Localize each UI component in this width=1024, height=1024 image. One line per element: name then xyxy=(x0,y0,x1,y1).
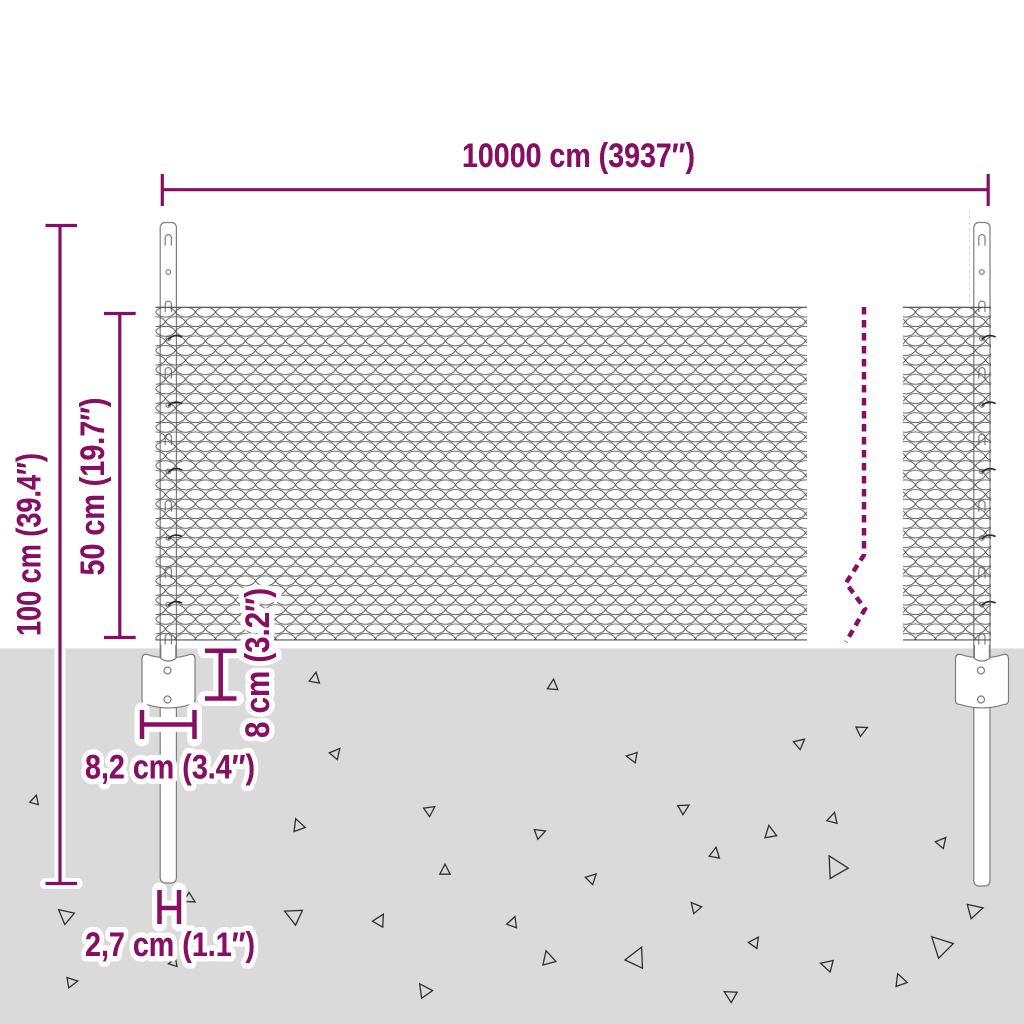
svg-text:2,7 cm (1.1″): 2,7 cm (1.1″) xyxy=(85,926,255,964)
svg-text:8,2 cm (3.4″): 8,2 cm (3.4″) xyxy=(85,749,255,787)
svg-text:8 cm (3.2″): 8 cm (3.2″) xyxy=(239,588,277,738)
svg-text:100 cm (39.4″): 100 cm (39.4″) xyxy=(11,453,49,636)
svg-text:10000 cm (3937″): 10000 cm (3937″) xyxy=(462,137,695,175)
svg-text:50 cm (19.7″): 50 cm (19.7″) xyxy=(74,398,112,576)
